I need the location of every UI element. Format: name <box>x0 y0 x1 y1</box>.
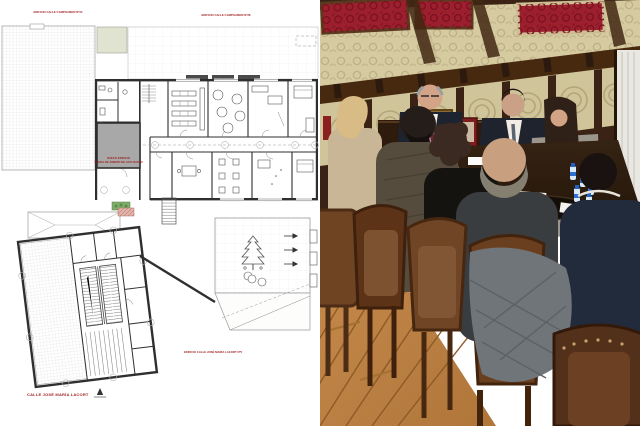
party-wall <box>140 256 215 302</box>
label-top-right-building: EDIFICIO CALLE CAMPOAMOR Nº28 <box>202 13 251 17</box>
floor-plan-pane: EDIFICIO CALLE CAMPOAMOR Nº24 EDIFICIO C… <box>0 0 320 426</box>
demolition-patch <box>118 208 134 216</box>
meeting-photo <box>320 0 640 426</box>
classroom-desks <box>172 88 205 130</box>
label-top-left-building: EDIFICIO CALLE CAMPOAMOR Nº24 <box>34 10 83 14</box>
green-roof-area <box>97 27 127 53</box>
lower-room-furniture <box>177 159 313 193</box>
floor-plan-drawing: EDIFICIO CALLE CAMPOAMOR Nº24 EDIFICIO C… <box>0 0 320 426</box>
terrace-area <box>128 27 318 79</box>
garage-wing <box>14 223 160 390</box>
screenshot: EDIFICIO CALLE CAMPOAMOR Nº24 EDIFICIO C… <box>0 0 640 426</box>
round-tables <box>213 90 245 133</box>
north-arrow-icon <box>94 388 106 397</box>
meeting-photo-pane <box>320 0 640 426</box>
patio <box>215 218 310 293</box>
office-furniture <box>252 86 314 132</box>
small-stair <box>162 198 176 224</box>
courtyard-tiled-area <box>2 24 95 170</box>
label-street: CALLE JOSÉ MARÍA LACORT <box>27 392 89 397</box>
leather-chair <box>554 325 640 426</box>
label-bottom-building: EDIFICIO CALLE JOSÉ MARÍA LACORT Nº5 <box>184 349 243 354</box>
core-void-block: HUECO EDIFICIO FUERA DE ÁMBITO DE ACTUAC… <box>94 123 142 168</box>
core-note-line2: FUERA DE ÁMBITO DE ACTUACIÓN <box>94 159 142 164</box>
